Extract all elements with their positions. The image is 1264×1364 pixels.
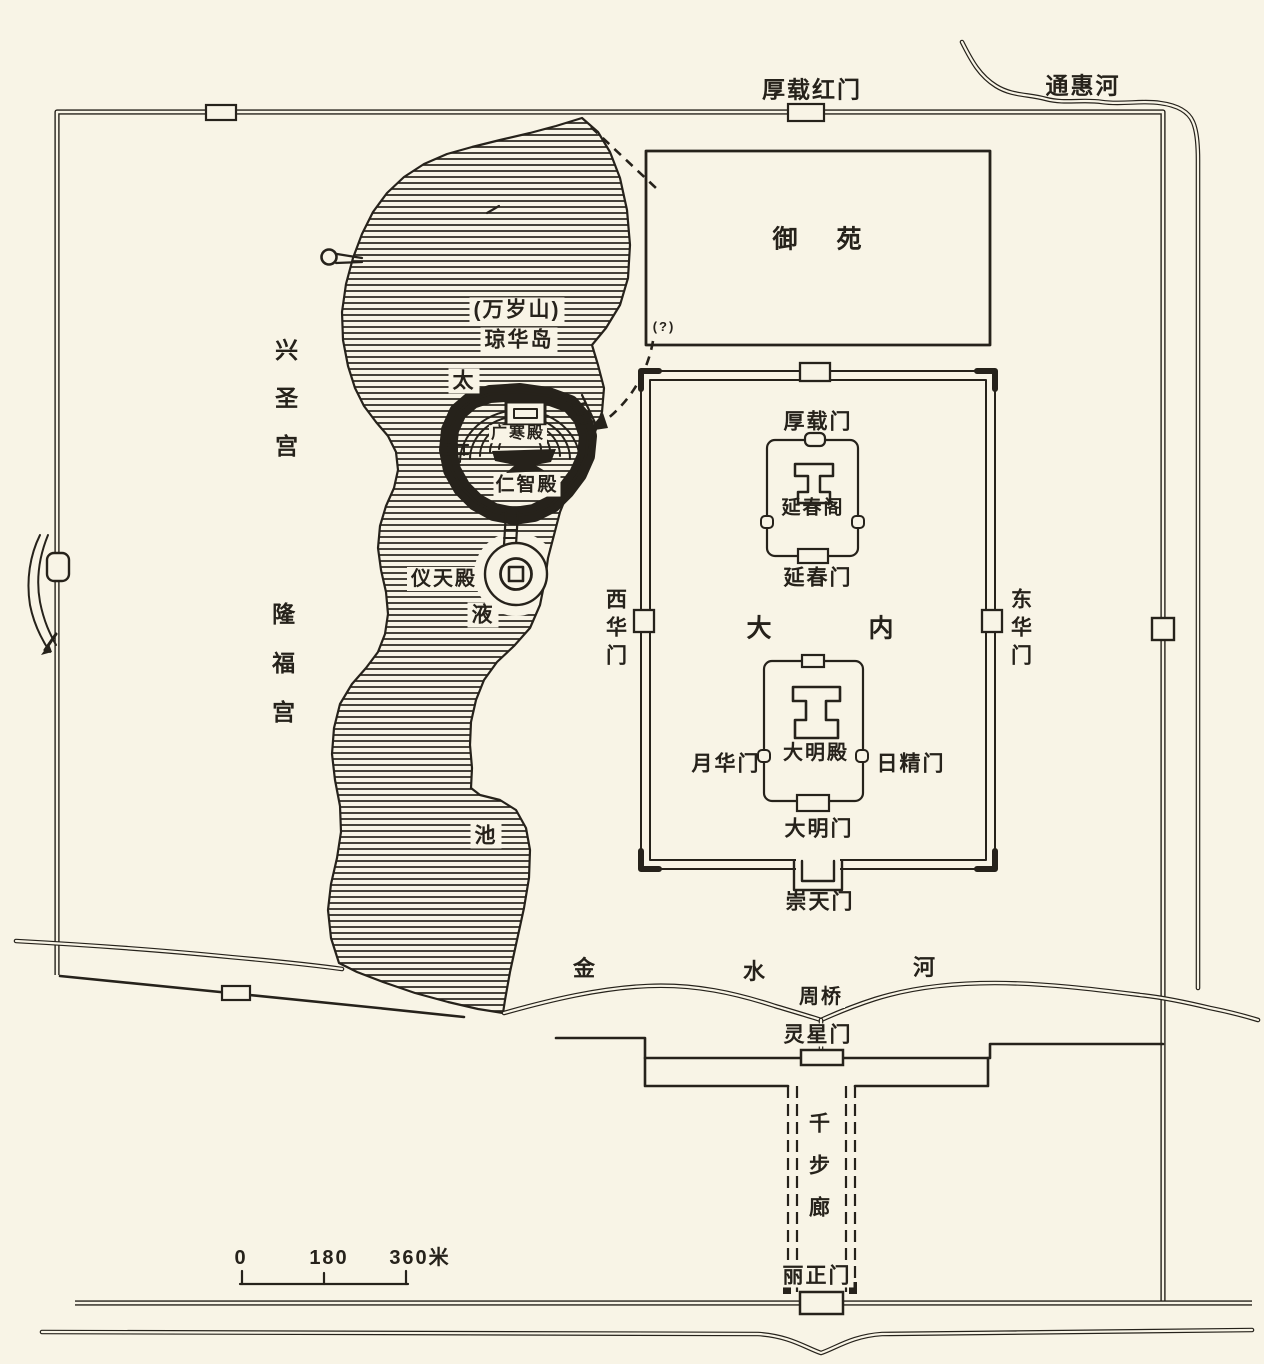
label-uncertain-mark: (?)	[653, 320, 676, 334]
map-labels: 通惠河 厚载红门 御 苑 (?) (万岁山) 琼华岛 太 液 池 广寒殿 仁智殿…	[0, 0, 1264, 1364]
label-chongtian-gate: 崇天门	[786, 890, 855, 913]
label-lizheng-gate: 丽正门	[781, 1264, 854, 1287]
label-taiye-char-ye: 液	[468, 602, 499, 627]
label-danei-char2: 内	[868, 615, 895, 643]
label-houzai-red-gate: 厚载红门	[762, 77, 862, 102]
label-yitian-hall: 仪天殿	[407, 567, 481, 591]
label-wansui-hill: (万岁山)	[470, 297, 565, 322]
label-yanchun-pavilion: 延春阁	[781, 499, 844, 520]
label-daming-gate: 大明门	[785, 817, 854, 840]
label-qionghua-island: 琼华岛	[481, 327, 558, 352]
label-danei-char1: 大	[746, 615, 773, 643]
label-xingsheng-palace: 兴圣宫	[271, 338, 296, 482]
label-houzai-gate: 厚载门	[784, 410, 853, 433]
label-donghua-gate: 东华门	[1008, 588, 1031, 672]
scale-tick-360: 360米	[389, 1247, 450, 1269]
label-yanchun-gate: 延春门	[784, 566, 853, 589]
label-yuyuan-char2: 苑	[836, 226, 863, 254]
label-thousand-step-corridor: 千步廊	[806, 1112, 829, 1238]
label-taiye-char-chi: 池	[471, 823, 502, 848]
yuan-dadu-palace-map: 通惠河 厚载红门 御 苑 (?) (万岁山) 琼华岛 太 液 池 广寒殿 仁智殿…	[0, 0, 1264, 1364]
scale-tick-0: 0	[234, 1247, 247, 1269]
label-yuehua-gate: 月华门	[692, 752, 761, 775]
label-tonghui-river: 通惠河	[1046, 73, 1121, 98]
label-daming-hall: 大明殿	[783, 742, 849, 764]
label-jinshui-char-he: 河	[913, 956, 937, 980]
label-renzhi-hall: 仁智殿	[493, 476, 560, 497]
label-xihua-gate: 西华门	[603, 588, 626, 672]
label-jinshui-char-shui: 水	[743, 960, 767, 984]
label-taiye-char-tai: 太	[449, 368, 480, 393]
label-zhou-bridge: 周桥	[797, 986, 845, 1008]
label-yuyuan-char1: 御	[772, 226, 799, 254]
label-longfu-palace: 隆福宫	[268, 602, 293, 749]
scale-tick-180: 180	[309, 1247, 348, 1269]
label-jinshui-char-jin: 金	[573, 957, 597, 981]
label-guanghan-hall: 广寒殿	[489, 425, 547, 443]
label-lingxing-gate: 灵星门	[782, 1023, 855, 1046]
label-rijing-gate: 日精门	[877, 752, 946, 775]
